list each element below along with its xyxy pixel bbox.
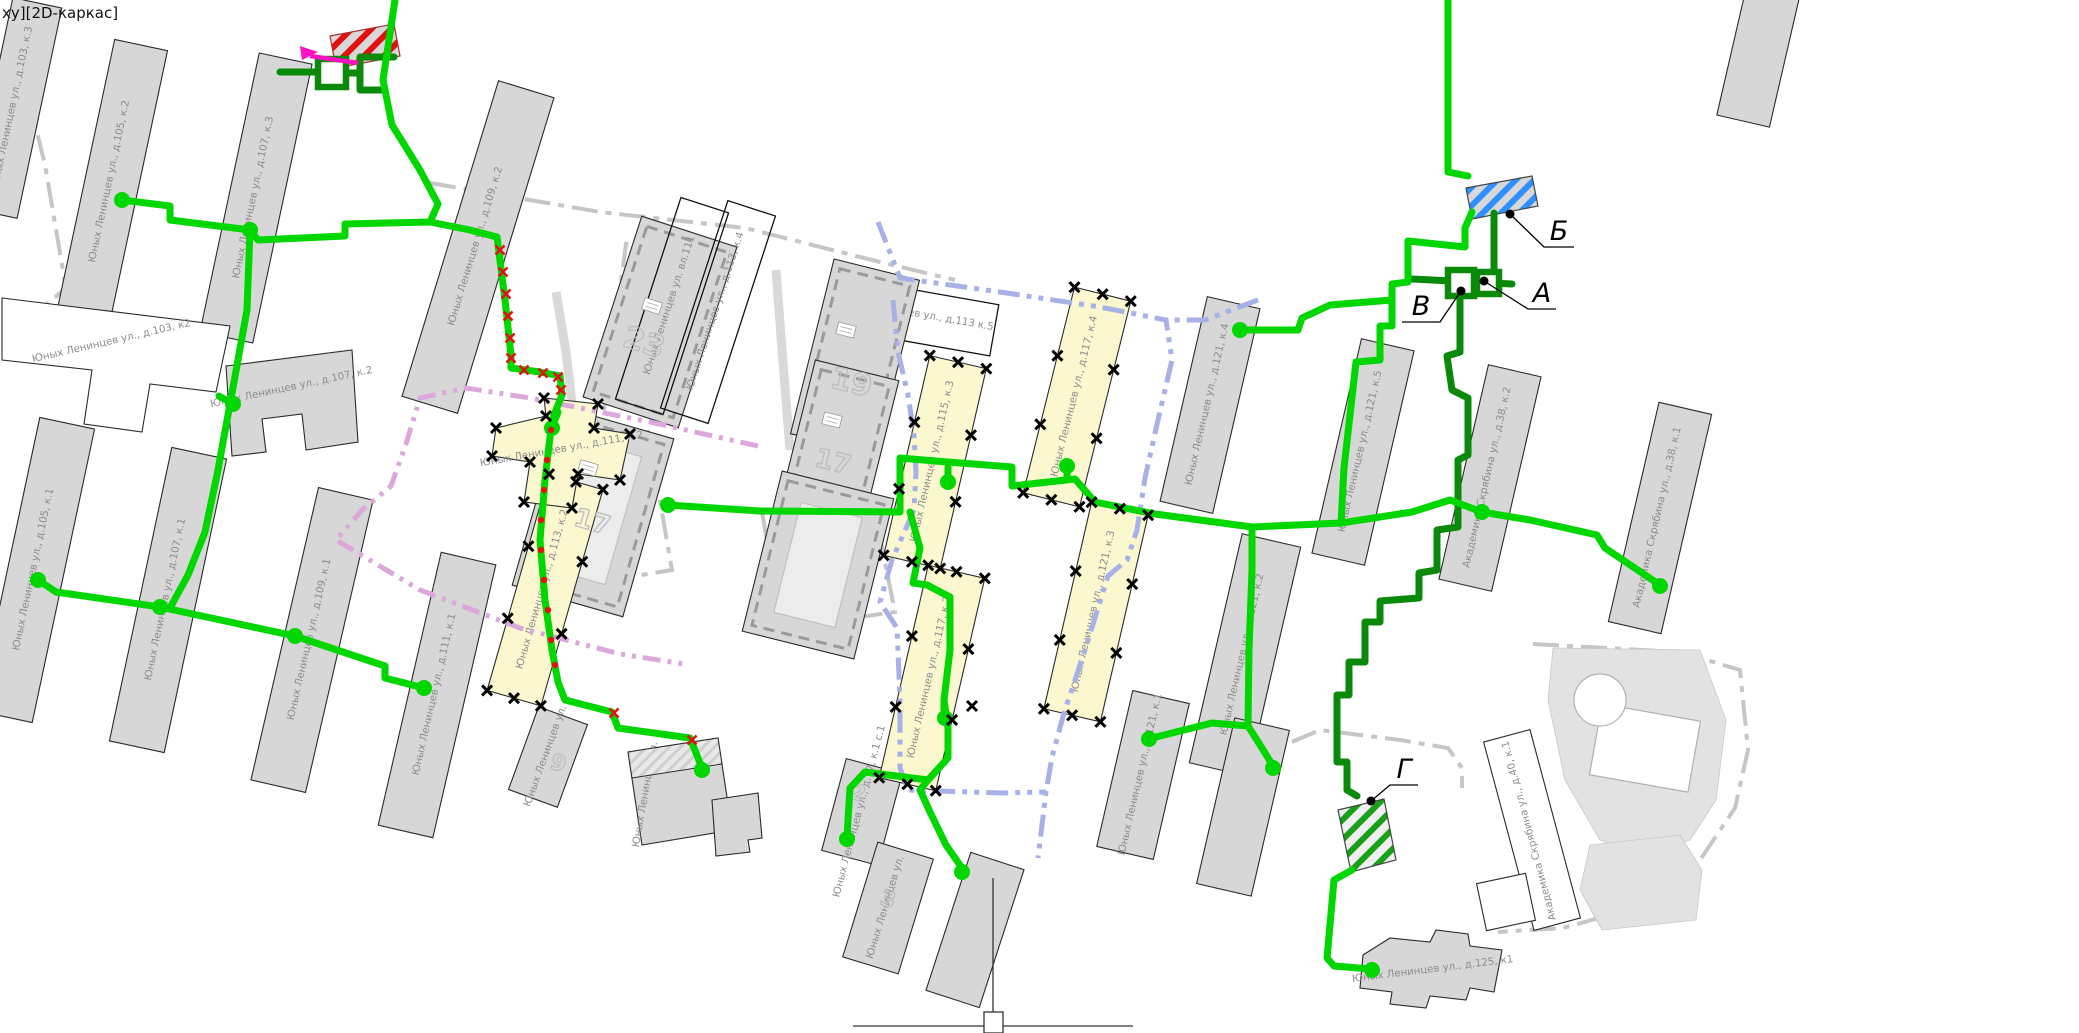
building: Юных Ленинцев ул. xyxy=(509,704,588,808)
leader-letter: Б xyxy=(1550,216,1569,247)
red-dot-marker xyxy=(552,662,558,668)
facility-green-hatched xyxy=(1338,799,1396,872)
cad-viewport[interactable]: xy][2D-каркас] Юных Ленинцев ул., д.103,… xyxy=(0,0,2079,1033)
pipeline-node-dot xyxy=(1141,731,1157,747)
building xyxy=(1717,0,1803,127)
pipeline-node-dot xyxy=(152,599,168,615)
pipeline-node-dot xyxy=(30,572,46,588)
building: Юных Ленинцев ул., д.105, к.2 xyxy=(56,39,167,324)
building-outline xyxy=(2,298,230,432)
pipeline-node-dot xyxy=(1652,578,1668,594)
building: Юных Ленинцев ул., д.117, к.4 xyxy=(1023,287,1131,507)
facility-blue-hatched xyxy=(1466,176,1538,219)
building xyxy=(742,471,894,659)
building: Юных Ленинцев ул., д.103, к2 xyxy=(2,298,230,432)
building: Юных Ленинцев ул., д.121, к.5 xyxy=(1312,339,1414,566)
building xyxy=(926,852,1024,1007)
leader-line xyxy=(1371,785,1418,801)
building: Юных Ленинцев ул., д.103, к.3 xyxy=(0,0,62,218)
pipeline-node-dot xyxy=(1474,504,1490,520)
pipeline-node-dot xyxy=(287,628,303,644)
building-outline xyxy=(0,417,95,722)
leader-dot xyxy=(1457,287,1466,296)
building xyxy=(712,793,762,856)
red-dot-marker xyxy=(538,517,544,523)
building: Академика Скрябина ул., д.38, к.1 xyxy=(1608,402,1711,633)
building-outline xyxy=(226,350,358,456)
red-dot-marker xyxy=(538,547,544,553)
building xyxy=(1477,873,1536,930)
red-dot-marker xyxy=(544,457,550,463)
building: Юных Ленинцев ул., д.111, к.1 xyxy=(378,552,496,837)
cad-canvas[interactable]: Юных Ленинцев ул., д.103, к.3Юных Ленинц… xyxy=(0,0,2079,1033)
pipeline-node-dot xyxy=(839,831,855,847)
pipeline-node-dot xyxy=(954,864,970,880)
viewport-control-label: xy][2D-каркас] xyxy=(2,4,118,22)
gas-pipeline xyxy=(383,0,438,222)
building-outline xyxy=(1580,835,1702,930)
pipeline-node-dot xyxy=(940,474,956,490)
pipeline-node-dot xyxy=(694,762,710,778)
gas-pipeline xyxy=(1243,300,1392,330)
gas-pipeline xyxy=(1448,0,1468,176)
block-boundary-gray xyxy=(1292,730,1462,788)
road-band xyxy=(776,270,790,450)
building xyxy=(1580,835,1702,930)
building: Юных Ленинцев ул., д.105, к.1 xyxy=(0,417,95,722)
regulator-square xyxy=(318,59,346,87)
leader-dot xyxy=(1480,277,1489,286)
pipeline-node-dot xyxy=(1059,458,1075,474)
red-dot-marker xyxy=(541,487,547,493)
red-dot-marker xyxy=(548,427,554,433)
building-outline xyxy=(1717,0,1803,127)
pipeline-node-dot xyxy=(242,222,258,238)
red-dot-marker xyxy=(545,607,551,613)
building: Юных Ленинцев ул., д.107, к.3 xyxy=(200,53,312,343)
red-dot-marker xyxy=(548,637,554,643)
gas-pipeline-dark xyxy=(360,73,382,90)
pipeline-node-dot xyxy=(660,497,676,513)
pipeline-node-dot xyxy=(114,192,130,208)
gas-pipeline xyxy=(668,458,1341,527)
building: Академика Скрябина ул., д.38, к.2 xyxy=(1439,365,1541,592)
pipeline-node-dot xyxy=(1232,322,1248,338)
pipeline-node-dot xyxy=(1265,760,1281,776)
building-outline xyxy=(926,852,1024,1007)
red-dot-marker xyxy=(541,577,547,583)
leader-Б: Б xyxy=(1506,210,1575,248)
leader-letter: А xyxy=(1531,278,1551,309)
building-outline xyxy=(1477,873,1536,930)
gas-pipeline xyxy=(38,580,424,688)
leader-dot xyxy=(1367,797,1376,806)
building: Юных Ленинцев ул., д.121, к.1 xyxy=(1097,691,1190,860)
pipeline-node-dot xyxy=(416,680,432,696)
leader-dot xyxy=(1506,210,1515,219)
building-outline xyxy=(712,793,762,856)
leader-letter: Г xyxy=(1396,754,1413,785)
building: Юных Ленинцев ул., д.117, к.2 xyxy=(879,565,985,790)
scale-box xyxy=(984,1012,1003,1033)
selection-grip-x xyxy=(967,701,977,711)
pipeline-node-dot xyxy=(1364,962,1380,978)
leader-letter: В xyxy=(1412,291,1431,322)
se-complex-circle xyxy=(1574,674,1626,726)
pipeline-node-dot xyxy=(225,396,241,412)
building: Юных Ленинцев ул., д.109, к.2 xyxy=(402,81,554,414)
leader-Г: Г xyxy=(1367,754,1419,806)
